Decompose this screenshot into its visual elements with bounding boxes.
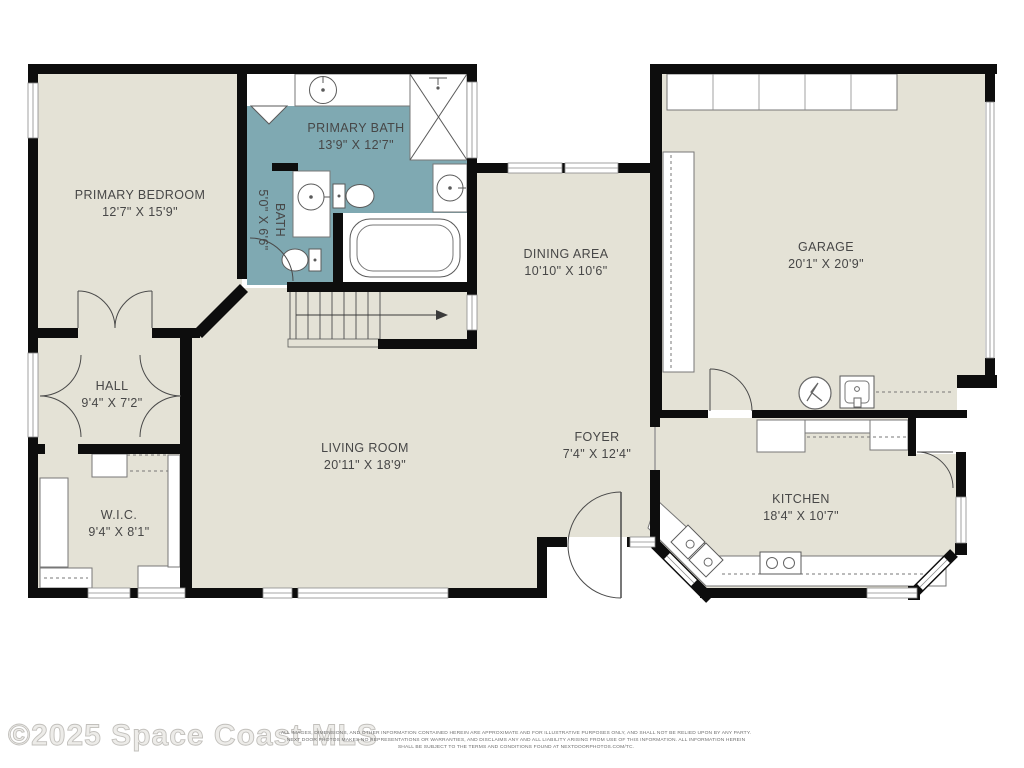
hall-label: HALL: [96, 379, 129, 393]
window-icon: [138, 588, 185, 598]
window-icon: [630, 537, 655, 547]
bath-dims: 5'0" X 6'6": [256, 189, 270, 250]
laundry-tub-icon: [840, 376, 874, 408]
living-room-dims: 20'11" X 18'9": [324, 458, 406, 472]
kitchen-label: KITCHEN: [772, 492, 830, 506]
toilet-icon: [333, 184, 374, 208]
vanity-sink-icon: [295, 74, 410, 106]
garage-cabinets: [667, 74, 897, 110]
kitchen-cabinet: [870, 420, 908, 450]
foyer-dims: 7'4" X 12'4": [563, 447, 632, 461]
window-icon: [508, 163, 562, 173]
window-icon: [88, 588, 130, 598]
window-icon: [467, 82, 477, 158]
primary-bedroom-dims: 12'7" X 15'9": [102, 205, 178, 219]
kitchen-dims: 18'4" X 10'7": [763, 509, 839, 523]
vanity-sink-icon: [293, 171, 330, 237]
primary-bath-dims: 13'9" X 12'7": [318, 138, 394, 152]
wic-dims: 9'4" X 8'1": [88, 525, 149, 539]
window-icon: [565, 163, 618, 173]
bath-label: BATH: [273, 203, 287, 237]
window-icon: [956, 497, 966, 543]
kitchen-counter: [805, 420, 870, 433]
window-icon: [467, 295, 477, 330]
primary-bath-label: PRIMARY BATH: [307, 121, 404, 135]
fridge-icon: [757, 420, 805, 452]
disclaimer-line-2: NEXT DOOR PHOTOS MAKES NO REPRESENTATION…: [287, 737, 746, 743]
bathtub-icon: [343, 213, 467, 282]
floor-plan: PRIMARY BEDROOM 12'7" X 15'9" PRIMARY BA…: [0, 0, 1024, 768]
garage-storage-column: [663, 152, 694, 372]
foyer-label: FOYER: [574, 430, 619, 444]
disclaimer-line-1: ALL IMAGES, DIMENSIONS, AND OTHER INFORM…: [281, 730, 751, 736]
window-icon: [263, 588, 292, 598]
dining-area-dims: 10'10" X 10'6": [524, 264, 607, 278]
entry-door-opening: [567, 537, 627, 547]
dining-area-label: DINING AREA: [524, 247, 609, 261]
window-icon: [28, 83, 38, 138]
garage-label: GARAGE: [798, 240, 854, 254]
stove-icon: [760, 552, 801, 574]
vanity-sink-icon: [433, 164, 467, 212]
dining-foyer-floor: [477, 173, 660, 547]
window-icon: [28, 353, 38, 437]
garage-dims: 20'1" X 20'9": [788, 257, 864, 271]
living-room-label: LIVING ROOM: [321, 441, 409, 455]
wic-label: W.I.C.: [101, 508, 137, 522]
garage-door-opening: [708, 410, 752, 418]
window-icon: [986, 102, 994, 358]
window-icon: [298, 588, 448, 598]
primary-bedroom-label: PRIMARY BEDROOM: [75, 188, 206, 202]
disclaimer-line-3: SHALL BE SUBJECT TO THE TERMS AND CONDIT…: [398, 744, 634, 750]
shower-icon: [410, 74, 467, 160]
hall-dims: 9'4" X 7'2": [81, 396, 142, 410]
water-heater-icon: [799, 377, 831, 409]
window-icon: [867, 588, 917, 598]
bath-entry-alcove: [247, 74, 295, 106]
